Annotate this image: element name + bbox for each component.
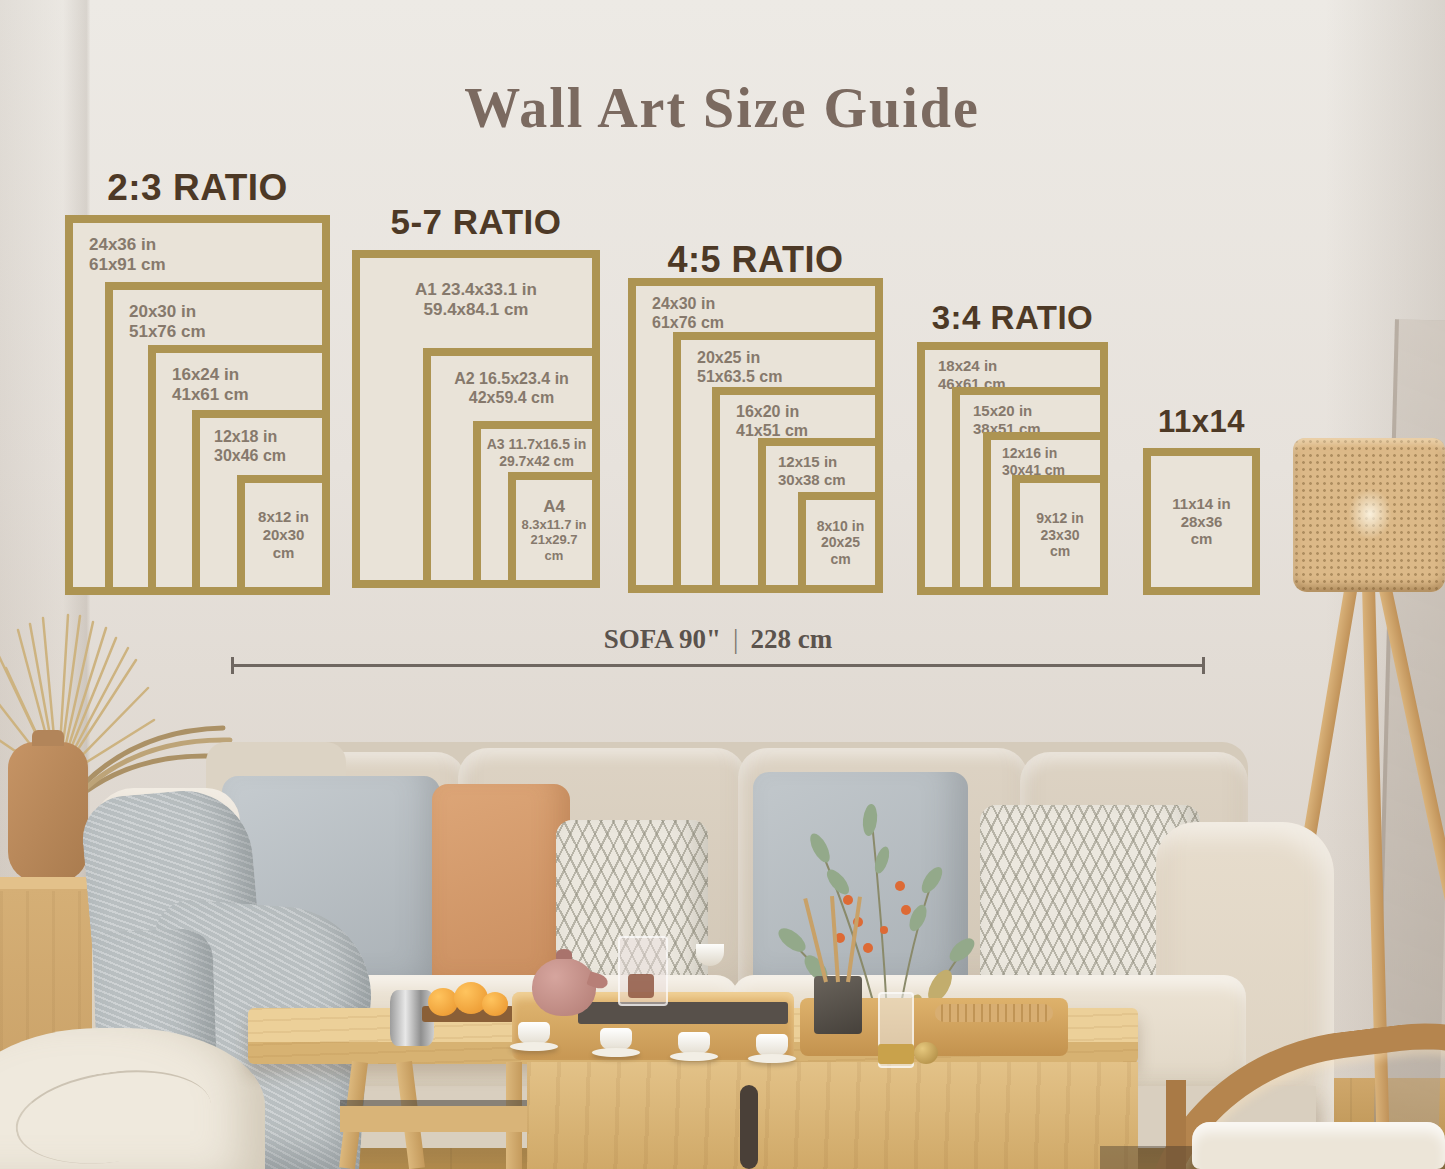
frame-size-label: 59.4x84.1 cm xyxy=(360,300,592,320)
sofa-width-value-in: SOFA 90" xyxy=(604,624,721,654)
ratio-heading-5-7: 5-7 RATIO xyxy=(352,202,600,242)
frame-size-label: 30x38 cm xyxy=(778,471,846,489)
frame-size-label: cm xyxy=(806,551,875,568)
sofa-width-value-cm: 228 cm xyxy=(750,624,832,654)
page-title: Wall Art Size Guide xyxy=(322,76,1122,140)
frame-size-label: 12x15 in xyxy=(778,453,846,471)
frame-size-label: 15x20 in xyxy=(973,402,1041,420)
frame-size-label: 20x25 xyxy=(806,534,875,551)
frame-size-label: cm xyxy=(245,544,322,562)
frame-size-label: 42x59.4 cm xyxy=(431,389,592,408)
frame-size-label: 12x18 in xyxy=(214,428,286,447)
frame-size-label: 20x30 in xyxy=(129,302,206,322)
frame-size-label: 8x10 in xyxy=(806,518,875,535)
frame-8x10: 8x10 in 20x25 cm xyxy=(798,492,883,593)
frame-size-label: 30x46 cm xyxy=(214,447,286,466)
frame-size-label: 61x76 cm xyxy=(652,314,724,333)
frame-size-label: 20x30 xyxy=(245,526,322,544)
ratio-heading-2-3: 2:3 RATIO xyxy=(65,167,330,209)
frame-size-label: 28x36 xyxy=(1151,513,1252,531)
ratio-heading-3-4: 3:4 RATIO xyxy=(917,299,1108,337)
wall-art-size-guide-scene: Wall Art Size Guide 2:3 RATIO 24x36 in 6… xyxy=(0,0,1445,1169)
frame-size-label: 8x12 in xyxy=(245,508,322,526)
frame-size-label: A3 11.7x16.5 in xyxy=(481,436,592,453)
sofa-width-label: SOFA 90"|228 cm xyxy=(231,624,1205,655)
sofa-measure-line xyxy=(231,664,1205,667)
frame-size-label: cm xyxy=(1151,530,1252,548)
frame-size-label: 51x63.5 cm xyxy=(697,368,782,387)
frame-size-label: 12x16 in xyxy=(1002,445,1065,462)
frame-size-label: 18x24 in xyxy=(938,357,1006,375)
frame-size-label: 16x20 in xyxy=(736,403,808,422)
size-guide-overlay: Wall Art Size Guide 2:3 RATIO 24x36 in 6… xyxy=(0,0,1445,1169)
frame-size-label: 16x24 in xyxy=(172,365,249,385)
frame-size-label: 23x30 xyxy=(1020,527,1100,544)
frame-size-label: 9x12 in xyxy=(1020,510,1100,527)
frame-size-label: A4 xyxy=(516,497,592,517)
frame-size-label: A1 23.4x33.1 in xyxy=(360,280,592,300)
frame-size-label: 29.7x42 cm xyxy=(481,453,592,470)
frame-size-label: 21x29.7 xyxy=(516,532,592,547)
frame-a4: A4 8.3x11.7 in 21x29.7 cm xyxy=(508,472,600,588)
ratio-heading-4-5: 4:5 RATIO xyxy=(628,239,883,281)
frame-size-label: 8.3x11.7 in xyxy=(516,517,592,532)
frame-9x12: 9x12 in 23x30 cm xyxy=(1012,475,1108,595)
frame-size-label: 61x91 cm xyxy=(89,255,166,275)
frame-size-label: 41x61 cm xyxy=(172,385,249,405)
ratio-heading-11x14: 11x14 xyxy=(1143,404,1260,440)
frame-size-label: cm xyxy=(516,548,592,563)
frame-size-label: 11x14 in xyxy=(1151,495,1252,513)
frame-size-label: 24x36 in xyxy=(89,235,166,255)
frame-size-label: 20x25 in xyxy=(697,349,782,368)
frame-11x14: 11x14 in 28x36 cm xyxy=(1143,448,1260,595)
frame-8x12: 8x12 in 20x30 cm xyxy=(237,475,330,595)
frame-size-label: 24x30 in xyxy=(652,295,724,314)
frame-size-label: cm xyxy=(1020,543,1100,560)
frame-size-label: A2 16.5x23.4 in xyxy=(431,370,592,389)
measure-separator: | xyxy=(721,624,750,654)
frame-size-label: 51x76 cm xyxy=(129,322,206,342)
